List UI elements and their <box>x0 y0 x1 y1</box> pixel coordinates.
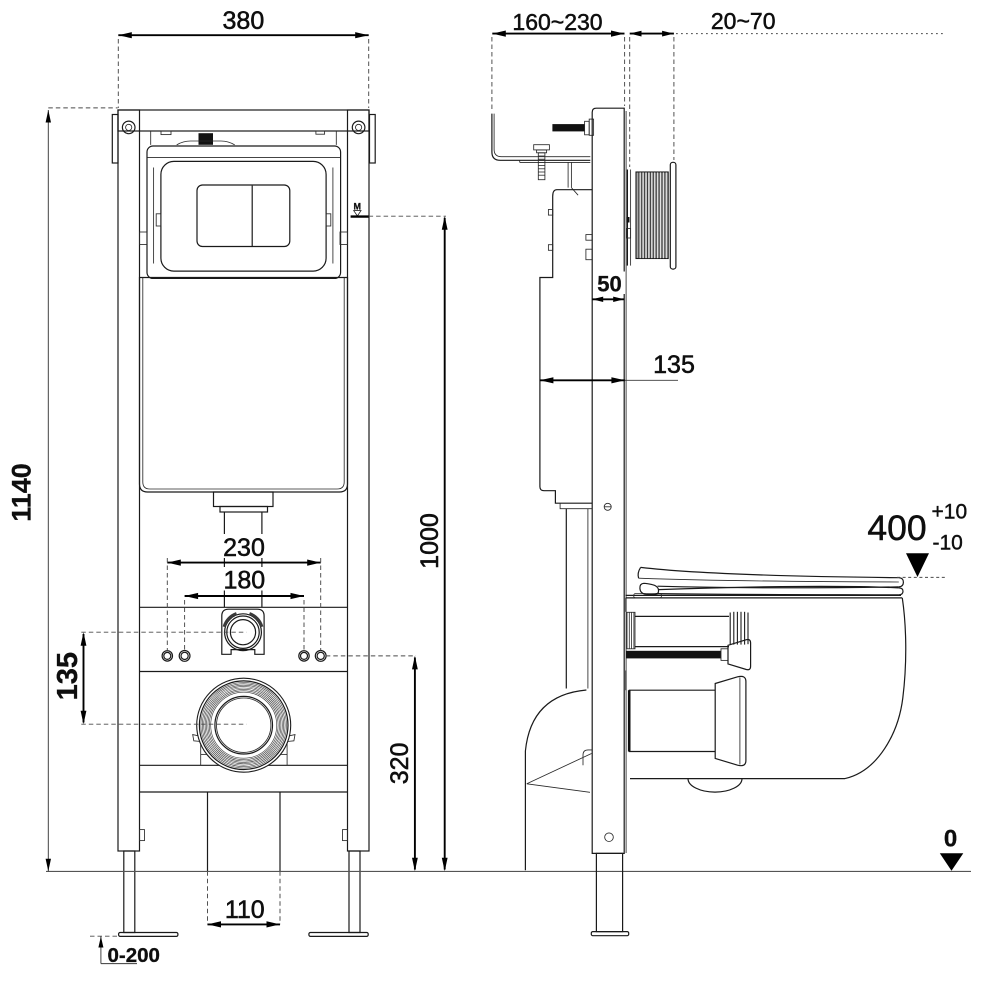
svg-text:380: 380 <box>223 7 265 35</box>
svg-text:0: 0 <box>944 826 957 853</box>
svg-text:160~230: 160~230 <box>512 9 602 35</box>
svg-text:20~70: 20~70 <box>711 8 776 34</box>
svg-text:110: 110 <box>225 896 265 924</box>
svg-text:400: 400 <box>867 508 926 548</box>
svg-text:-10: -10 <box>933 532 963 555</box>
svg-text:50: 50 <box>597 272 621 297</box>
svg-text:180: 180 <box>223 567 265 595</box>
svg-text:135: 135 <box>52 652 84 700</box>
svg-text:135: 135 <box>653 351 695 379</box>
svg-text:+10: +10 <box>932 501 968 524</box>
svg-text:230: 230 <box>223 534 265 562</box>
svg-text:320: 320 <box>386 743 414 785</box>
svg-text:M: M <box>353 202 361 212</box>
svg-text:1140: 1140 <box>7 463 37 522</box>
svg-text:0-200: 0-200 <box>108 944 160 967</box>
svg-text:1000: 1000 <box>416 513 444 569</box>
